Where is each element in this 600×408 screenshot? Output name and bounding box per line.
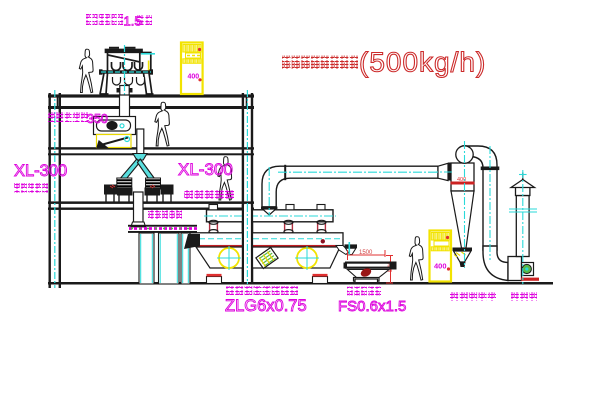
svg-text:ZLG6x0.75: ZLG6x0.75 (225, 297, 307, 315)
svg-text:400: 400 (434, 262, 447, 271)
svg-text:XL-300: XL-300 (178, 160, 233, 179)
svg-text:400: 400 (188, 74, 200, 81)
svg-text:XL-300: XL-300 (14, 162, 67, 180)
svg-text:1500: 1500 (359, 250, 373, 256)
svg-text:350: 350 (87, 112, 108, 126)
svg-text:(500kg/h): (500kg/h) (359, 47, 486, 78)
svg-text:FS0.6x1.5: FS0.6x1.5 (338, 298, 406, 315)
